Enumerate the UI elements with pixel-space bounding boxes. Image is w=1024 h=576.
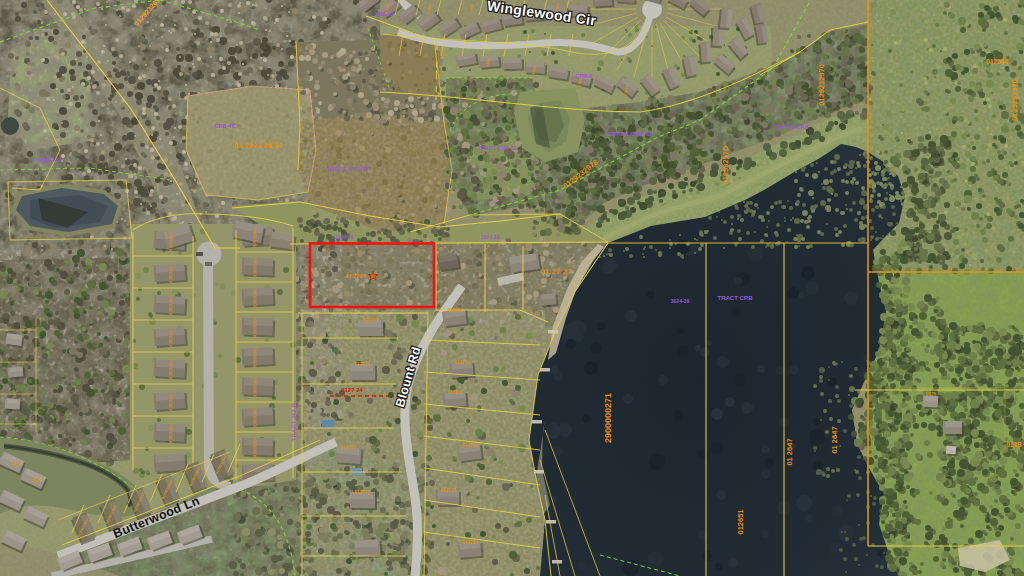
svg-text:0129232860: 0129232860 [253, 377, 257, 398]
svg-text:012734: 012734 [462, 540, 478, 545]
svg-text:0129232860: 0129232860 [169, 231, 173, 252]
svg-text:01 27 27: 01 27 27 [540, 267, 572, 276]
svg-text:3024-39: 3024-39 [335, 234, 354, 240]
svg-text:012725: 012725 [340, 445, 356, 450]
svg-text:012725: 012725 [354, 490, 370, 495]
svg-text:0129232860: 0129232860 [253, 287, 257, 308]
svg-text:0129232860: 0129232860 [253, 227, 257, 248]
svg-text:0129232860: 0129232860 [169, 295, 173, 316]
svg-text:0129232970: 0129232970 [817, 64, 826, 106]
svg-text:0129: 0129 [31, 478, 42, 483]
svg-text:0129232860: 0129232860 [169, 359, 173, 380]
svg-text:012710: 012710 [447, 308, 463, 313]
svg-text:01 2647: 01 2647 [830, 426, 839, 453]
svg-text:TRACT CR8-4L: TRACT CR8-4L [477, 145, 517, 151]
svg-text:012534: 012534 [986, 58, 1008, 65]
svg-text:0129232860: 0129232860 [253, 437, 257, 458]
svg-text:0l 2726: 0l 2726 [346, 273, 367, 279]
svg-text:0129: 0129 [11, 462, 22, 467]
svg-text:TRACT CR8-4D: TRACT CR8-4D [608, 131, 652, 137]
svg-text:TRACT CR8: TRACT CR8 [774, 124, 809, 130]
svg-text:012B: 012B [1006, 441, 1022, 448]
svg-text:0129232860: 0129232860 [253, 347, 257, 368]
svg-text:0129232860: 0129232860 [169, 423, 173, 444]
svg-text:CR8-4-46: CR8-4-46 [38, 157, 62, 163]
svg-text:0129232860: 0129232860 [253, 317, 257, 338]
svg-text:CR8-4C: CR8-4C [214, 123, 236, 129]
svg-text:TRACT CRB: TRACT CRB [718, 295, 754, 301]
svg-text:012732: 012732 [462, 443, 478, 448]
svg-text:012733: 012733 [440, 488, 456, 493]
svg-text:0129232860: 0129232860 [253, 407, 257, 428]
svg-text:0129232860: 0129232860 [253, 257, 257, 278]
svg-text:2900000271: 2900000271 [603, 393, 613, 443]
svg-text:0127 24: 0127 24 [341, 387, 363, 393]
svg-text:0129232860: 0129232860 [169, 327, 173, 348]
svg-text:01293297D: 01293297D [721, 145, 730, 184]
svg-text:3024-39: 3024-39 [671, 298, 690, 304]
svg-text:01 2647: 01 2647 [785, 438, 794, 465]
svg-text:012710: 012710 [454, 360, 470, 365]
svg-text:0125: 0125 [926, 392, 937, 397]
svg-text:0129232860: 0129232860 [169, 263, 173, 284]
svg-text:012651: 012651 [736, 509, 745, 534]
svg-text:3024-39: 3024-39 [481, 234, 500, 240]
svg-text:012725: 012725 [362, 318, 378, 323]
svg-text:TRACT 302-B: TRACT 302-B [291, 402, 297, 441]
svg-text:0129232970: 0129232970 [1010, 79, 1019, 121]
svg-text:013110: 013110 [448, 390, 463, 395]
svg-text:01 2923 26 34: 01 2923 26 34 [234, 141, 283, 150]
svg-text:0129232860: 0129232860 [169, 391, 173, 412]
svg-text:012725: 012725 [354, 362, 370, 367]
svg-text:TRACT CR8-4C: TRACT CR8-4C [326, 166, 370, 172]
